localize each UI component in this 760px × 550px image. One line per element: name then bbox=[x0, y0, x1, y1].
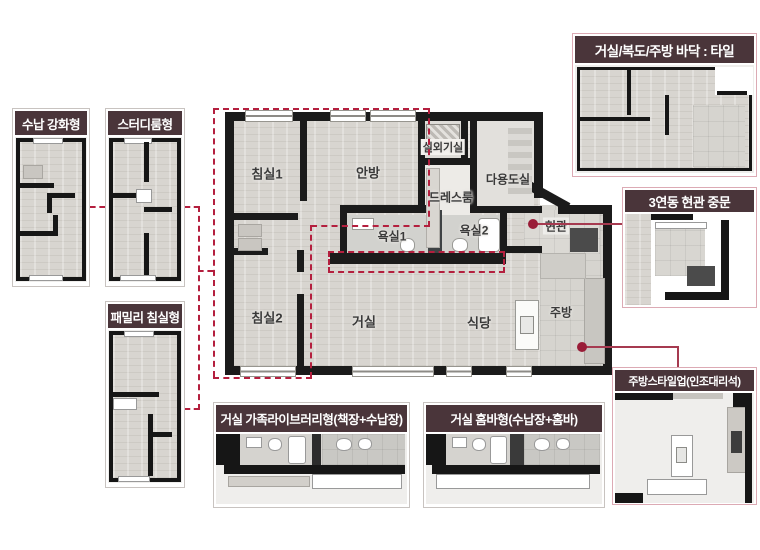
thumbnail-toilet bbox=[358, 438, 372, 450]
wall-segment bbox=[297, 250, 304, 272]
thumbnail-counter bbox=[673, 393, 723, 399]
connector-line bbox=[198, 270, 213, 272]
thumbnail-tile-floor bbox=[693, 105, 745, 167]
dashed-region-bedroom-wing bbox=[311, 225, 430, 227]
callout-tile: 거실/복도/주방 바닥 : 타일 bbox=[572, 33, 757, 177]
window-marker bbox=[370, 110, 416, 122]
thumbnail-desk bbox=[136, 189, 152, 203]
callout-library: 거실 가족라이브러리형(책장+수납장) bbox=[213, 402, 410, 508]
callout-family: 패밀리 침실형 bbox=[105, 301, 185, 488]
wall-segment bbox=[470, 206, 542, 213]
thumbnail-bookshelf bbox=[228, 476, 310, 487]
window-marker bbox=[352, 366, 434, 377]
connector-line bbox=[198, 206, 200, 410]
room-label-bedroom1: 침실1 bbox=[251, 164, 282, 183]
entrance-marker-dot bbox=[528, 219, 538, 229]
window-marker bbox=[245, 110, 293, 122]
thumbnail-partition bbox=[312, 434, 321, 465]
cooktop bbox=[520, 316, 534, 334]
room-label-master: 안방 bbox=[356, 163, 380, 182]
thumbnail-homebar-counter bbox=[436, 474, 590, 489]
thumbnail-door-plan bbox=[625, 214, 754, 305]
connector-line bbox=[185, 206, 199, 208]
thumbnail-wall bbox=[144, 142, 149, 182]
callout-storage: 수납 강화형 bbox=[12, 108, 90, 287]
toilet bbox=[452, 238, 468, 252]
sink bbox=[352, 218, 374, 230]
dashed-region-living-wall bbox=[328, 251, 505, 273]
thumbnail-closet bbox=[23, 165, 43, 179]
thumbnail-wall bbox=[144, 233, 149, 279]
wall-segment bbox=[297, 294, 304, 370]
thumbnail-wall bbox=[651, 214, 693, 220]
thumbnail-library-plan bbox=[216, 434, 407, 504]
thumbnail-wall bbox=[615, 493, 643, 503]
thumbnail-study-plan bbox=[108, 137, 182, 282]
thumbnail-window bbox=[118, 476, 150, 482]
thumbnail-wall bbox=[224, 465, 405, 474]
thumbnail-toilet bbox=[268, 438, 282, 451]
callout-storage-header: 수납 강화형 bbox=[15, 111, 87, 135]
thumbnail-cabinet bbox=[113, 398, 137, 410]
window-marker bbox=[240, 366, 296, 377]
wall-segment bbox=[506, 246, 542, 253]
thumbnail-floor bbox=[625, 214, 651, 305]
thumbnail-bathtub bbox=[288, 436, 306, 464]
callout-study-header: 스터디룸형 bbox=[108, 111, 182, 135]
closet bbox=[238, 224, 262, 237]
room-label-bath2: 욕실2 bbox=[460, 222, 489, 239]
callout-door-header: 3연동 현관 중문 bbox=[625, 190, 754, 212]
dashed-region-bedroom-wing bbox=[213, 108, 429, 110]
thumbnail-wall bbox=[665, 95, 669, 135]
thumbnail-sink bbox=[452, 437, 467, 448]
window-marker bbox=[330, 110, 366, 122]
room-label-bath1: 욕실1 bbox=[378, 228, 407, 245]
wall-segment bbox=[300, 121, 307, 201]
thumbnail-wall bbox=[615, 393, 673, 400]
wall-segment bbox=[418, 121, 425, 211]
thumbnail-wall bbox=[148, 414, 153, 476]
thumbnail-toilet bbox=[556, 438, 570, 450]
callout-library-header: 거실 가족라이브러리형(책장+수납장) bbox=[216, 405, 407, 432]
connector-line-kitchen bbox=[585, 346, 679, 348]
thumbnail-wall bbox=[47, 193, 52, 213]
callout-door: 3연동 현관 중문 bbox=[622, 187, 757, 308]
thumbnail-toilet bbox=[472, 438, 486, 451]
thumbnail-toilet bbox=[336, 438, 352, 451]
callout-homebar-header: 거실 홈바형(수납장+홈바) bbox=[426, 405, 602, 432]
window-marker bbox=[446, 366, 472, 377]
connector-line bbox=[90, 206, 105, 208]
callout-styleup-header: 주방스타일업(인조대리석) bbox=[615, 370, 754, 391]
thumbnail-window bbox=[33, 138, 63, 144]
thumbnail-wall bbox=[721, 220, 729, 300]
kitchen-counter bbox=[540, 253, 586, 279]
thumbnail-wall bbox=[148, 432, 172, 437]
thumbnail-wall bbox=[216, 434, 240, 465]
room-label-dining: 식당 bbox=[467, 313, 491, 332]
callout-study: 스터디룸형 bbox=[105, 108, 185, 287]
window-marker bbox=[506, 366, 532, 377]
thumbnail-toilet bbox=[534, 438, 550, 451]
room-label-living: 거실 bbox=[352, 312, 376, 331]
thumbnail-wall bbox=[20, 183, 54, 188]
wall-segment bbox=[340, 213, 347, 253]
thumbnail-window bbox=[120, 275, 156, 281]
thumbnail-tile-plan bbox=[575, 65, 754, 173]
connector-line-entrance bbox=[536, 223, 622, 225]
wall-segment bbox=[234, 213, 298, 220]
room-label-entrance: 현관 bbox=[543, 218, 569, 235]
ac-unit bbox=[426, 124, 460, 140]
room-label-kitchen: 주방 bbox=[550, 304, 572, 321]
closet bbox=[238, 238, 262, 251]
thumbnail-wall bbox=[53, 215, 58, 236]
thumbnail-bathtub bbox=[490, 436, 507, 464]
callout-homebar: 거실 홈바형(수납장+홈바) bbox=[423, 402, 605, 508]
thumbnail-window bbox=[124, 331, 154, 337]
thumbnail-wall bbox=[144, 207, 172, 212]
thumbnail-wall bbox=[113, 392, 159, 397]
floor-plan-infographic: 침실1 안방 실외기실 드레스룸 다용도실 욕실1 욕실2 현관 침실2 거실 … bbox=[0, 0, 760, 550]
thumbnail-wall bbox=[717, 91, 747, 95]
kitchen-counter bbox=[584, 278, 605, 364]
thumbnail-wall bbox=[627, 70, 631, 115]
dashed-region-bedroom-wing bbox=[428, 108, 430, 227]
thumbnail-wall bbox=[665, 292, 725, 300]
connector-line bbox=[185, 408, 199, 410]
thumbnail-wall bbox=[745, 407, 752, 503]
thumbnail-styleup-plan bbox=[615, 393, 754, 503]
dashed-region-bedroom-wing bbox=[213, 108, 215, 377]
thumbnail-shoe-cabinet bbox=[687, 266, 715, 286]
thumbnail-middle-door bbox=[655, 222, 707, 229]
thumbnail-wall bbox=[733, 393, 752, 407]
thumbnail-wall bbox=[426, 434, 446, 465]
callout-tile-header: 거실/복도/주방 바닥 : 타일 bbox=[575, 36, 754, 63]
callout-family-header: 패밀리 침실형 bbox=[108, 304, 182, 328]
connector-line-kitchen bbox=[677, 346, 679, 369]
thumbnail-window bbox=[29, 275, 63, 281]
wall-segment bbox=[225, 112, 234, 375]
dashed-region-bedroom-wing bbox=[213, 377, 312, 379]
thumbnail-sink bbox=[246, 437, 262, 448]
room-label-dress: 드레스룸 bbox=[429, 189, 473, 206]
thumbnail-wall bbox=[580, 117, 650, 121]
thumbnail-storage-plan bbox=[15, 137, 87, 282]
shoe-cabinet bbox=[570, 228, 598, 252]
thumbnail-cooktop bbox=[676, 447, 687, 463]
room-label-utility: 다용도실 bbox=[486, 171, 530, 188]
thumbnail-appliance bbox=[731, 431, 742, 453]
thumbnail-counter-white bbox=[647, 479, 707, 495]
kitchen-marker-dot bbox=[577, 342, 587, 352]
thumbnail-wall bbox=[432, 465, 600, 474]
room-label-bedroom2: 침실2 bbox=[251, 308, 282, 327]
callout-styleup: 주방스타일업(인조대리석) bbox=[612, 367, 757, 505]
thumbnail-storage-cabinet bbox=[312, 474, 402, 489]
thumbnail-homebar-plan bbox=[426, 434, 602, 504]
thumbnail-family-plan bbox=[108, 330, 182, 483]
dashed-region-bedroom-wing bbox=[310, 225, 312, 378]
